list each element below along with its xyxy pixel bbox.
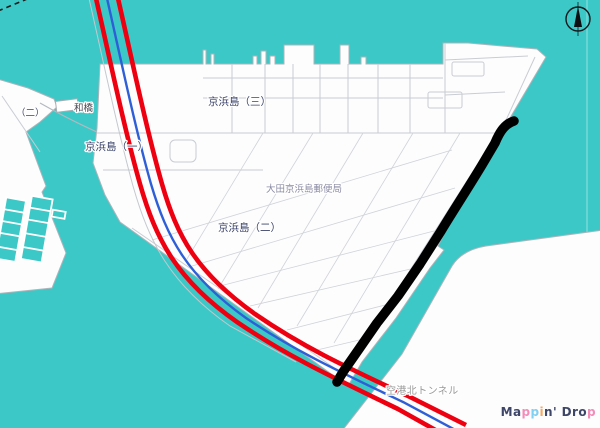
label-bridge: 和橋 (74, 102, 94, 114)
map-svg: 京浜島（三） 京浜島（一） 京浜島（二） 大田京浜島郵便局 空港北トンネル 和橋… (0, 0, 600, 428)
map-canvas[interactable]: 京浜島（三） 京浜島（一） 京浜島（二） 大田京浜島郵便局 空港北トンネル 和橋… (0, 0, 600, 428)
label-keihinjima-1: 京浜島（一） (85, 140, 148, 153)
label-keihinjima-2: 京浜島（二） (218, 221, 281, 234)
label-post-office: 大田京浜島郵便局 (266, 183, 342, 195)
label-west-district: （二） (16, 107, 45, 119)
watermark: Mappin' Drop (492, 391, 596, 419)
label-tunnel: 空港北トンネル (386, 384, 459, 397)
watermark-text: Mappin' Drop (501, 405, 596, 419)
label-keihinjima-3: 京浜島（三） (208, 95, 271, 108)
